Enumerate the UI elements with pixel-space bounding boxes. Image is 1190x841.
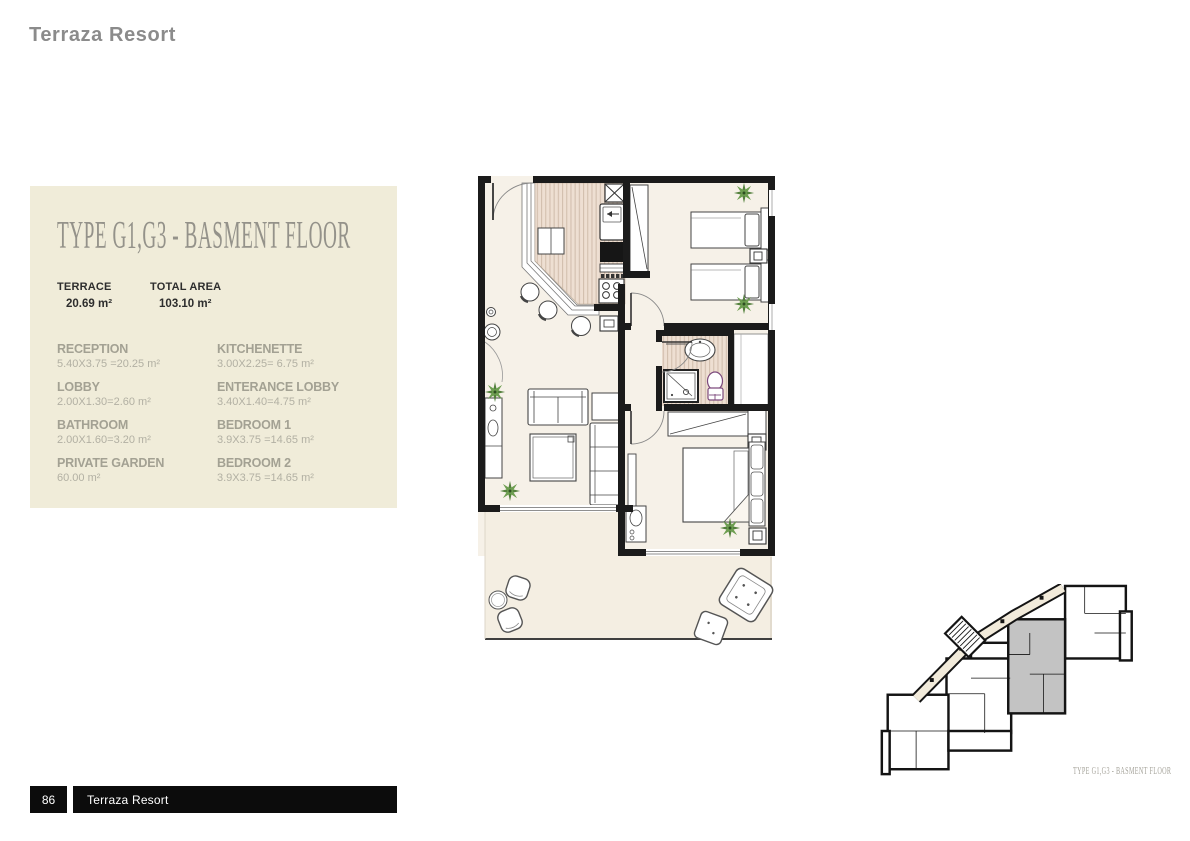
living-window — [500, 505, 616, 512]
keyplan-caption: TYPE G1,G3 - BASMENT FLOOR — [1073, 766, 1166, 777]
room-name: KITCHENETTE — [217, 341, 377, 357]
highlighted-unit — [1008, 619, 1065, 713]
footer-bar: Terraza Resort — [73, 786, 397, 813]
room-dimensions: 60.00 m² — [57, 471, 217, 486]
area-stats: TERRACE20.69 m²TOTAL AREA103.10 m² — [57, 281, 377, 310]
bedroom2-window — [646, 549, 740, 556]
key-plan — [874, 584, 1166, 780]
area-stat: TOTAL AREA103.10 m² — [150, 281, 221, 310]
room-dimensions: 3.00X2.25= 6.75 m² — [217, 357, 377, 372]
area-stat: TERRACE20.69 m² — [57, 281, 112, 310]
room-entry: KITCHENETTE3.00X2.25= 6.75 m² — [217, 341, 377, 372]
page-title: Terraza Resort — [29, 24, 176, 47]
room-name: PRIVATE GARDEN — [57, 455, 217, 471]
room-dimensions: 3.9X3.75 =14.65 m² — [217, 433, 377, 448]
room-list-left: RECEPTION5.40X3.75 =20.25 m²LOBBY2.00X1.… — [57, 341, 217, 493]
bathroom — [662, 334, 768, 406]
page: Terraza Resort TYPE G1,G3 - BASMENT FLOO… — [0, 0, 1190, 841]
footer-label: Terraza Resort — [87, 793, 169, 807]
room-dimensions: 2.00X1.60=3.20 m² — [57, 433, 217, 448]
room-dimensions: 3.40X1.40=4.75 m² — [217, 395, 377, 410]
page-number: 86 — [30, 786, 67, 813]
room-name: RECEPTION — [57, 341, 217, 357]
room-entry: PRIVATE GARDEN60.00 m² — [57, 455, 217, 486]
floor-plan — [478, 176, 775, 646]
room-entry: ENTERANCE LOBBY3.40X1.40=4.75 m² — [217, 379, 377, 410]
room-name: LOBBY — [57, 379, 217, 395]
stat-value: 20.69 m² — [57, 298, 112, 310]
stat-label: TERRACE — [57, 281, 112, 293]
room-dimensions: 2.00X1.30=2.60 m² — [57, 395, 217, 410]
toilet — [708, 372, 724, 400]
stat-label: TOTAL AREA — [150, 281, 221, 293]
stat-value: 103.10 m² — [150, 298, 221, 310]
room-name: BATHROOM — [57, 417, 217, 433]
room-entry: BEDROOM 13.9X3.75 =14.65 m² — [217, 417, 377, 448]
room-entry: BEDROOM 23.9X3.75 =14.65 m² — [217, 455, 377, 486]
room-dimensions: 5.40X3.75 =20.25 m² — [57, 357, 217, 372]
room-entry: LOBBY2.00X1.30=2.60 m² — [57, 379, 217, 410]
unit-info-card: TYPE G1,G3 - BASMENT FLOOR TERRACE20.69 … — [30, 186, 397, 508]
room-entry: BATHROOM2.00X1.60=3.20 m² — [57, 417, 217, 448]
room-dimensions: 3.9X3.75 =14.65 m² — [217, 471, 377, 486]
room-list: RECEPTION5.40X3.75 =20.25 m²LOBBY2.00X1.… — [57, 341, 377, 493]
unit-type-title: TYPE G1,G3 - BASMENT FLOOR — [57, 216, 223, 255]
room-name: BEDROOM 2 — [217, 455, 377, 471]
room-list-right: KITCHENETTE3.00X2.25= 6.75 m²ENTERANCE L… — [217, 341, 377, 493]
room-name: BEDROOM 1 — [217, 417, 377, 433]
room-entry: RECEPTION5.40X3.75 =20.25 m² — [57, 341, 217, 372]
room-name: ENTERANCE LOBBY — [217, 379, 377, 395]
